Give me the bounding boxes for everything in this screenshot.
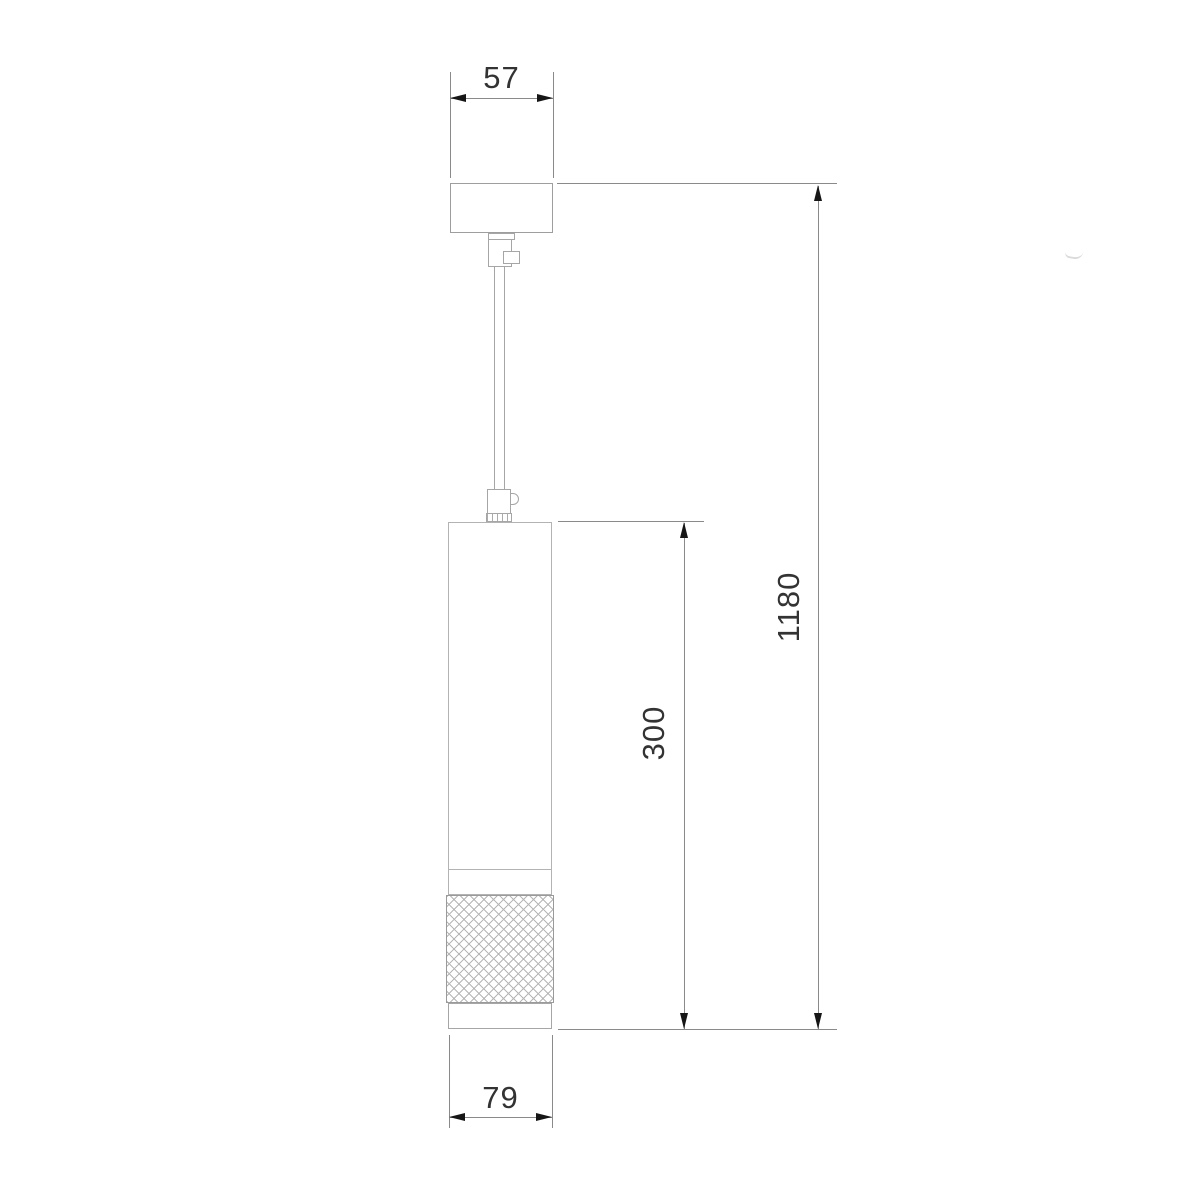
lamp-body-cylinder bbox=[448, 522, 552, 895]
dim-bottom-extension bbox=[558, 1029, 837, 1030]
knurled-grip-section bbox=[446, 895, 554, 1003]
dim-300-value: 300 bbox=[638, 706, 670, 761]
dim-57-arrow-right-icon bbox=[537, 94, 553, 102]
dim-79-arrow-right-icon bbox=[536, 1113, 552, 1121]
lamp-body-seam bbox=[448, 869, 552, 870]
dim-1180-line bbox=[818, 186, 819, 1029]
dim-57-value: 57 bbox=[450, 62, 553, 94]
dim-57-extension-right bbox=[553, 72, 554, 178]
faint-artifact-mark bbox=[1064, 249, 1083, 261]
cord-grip-knob bbox=[503, 251, 520, 264]
connector-threaded-ring bbox=[486, 513, 512, 522]
bottom-trim-ring bbox=[448, 1003, 552, 1029]
technical-drawing-canvas: 57 1180 300 79 bbox=[0, 0, 1200, 1200]
dim-79-arrow-left-icon bbox=[449, 1113, 465, 1121]
dim-300-arrow-bottom-icon bbox=[680, 1013, 688, 1029]
dim-1180-arrow-bottom-icon bbox=[814, 1013, 822, 1029]
dim-79-extension-right bbox=[552, 1035, 553, 1128]
dim-1180-extension-top bbox=[557, 183, 837, 184]
dim-57-arrow-left-icon bbox=[450, 94, 466, 102]
ceiling-canopy bbox=[450, 183, 553, 233]
suspension-cable bbox=[494, 267, 505, 489]
dim-1180-value: 1180 bbox=[773, 572, 805, 643]
lamp-connector bbox=[487, 489, 511, 514]
dim-300-arrow-top-icon bbox=[680, 522, 688, 538]
dim-1180-arrow-top-icon bbox=[814, 185, 822, 201]
dim-79-value: 79 bbox=[449, 1082, 552, 1114]
dim-300-line bbox=[684, 523, 685, 1029]
